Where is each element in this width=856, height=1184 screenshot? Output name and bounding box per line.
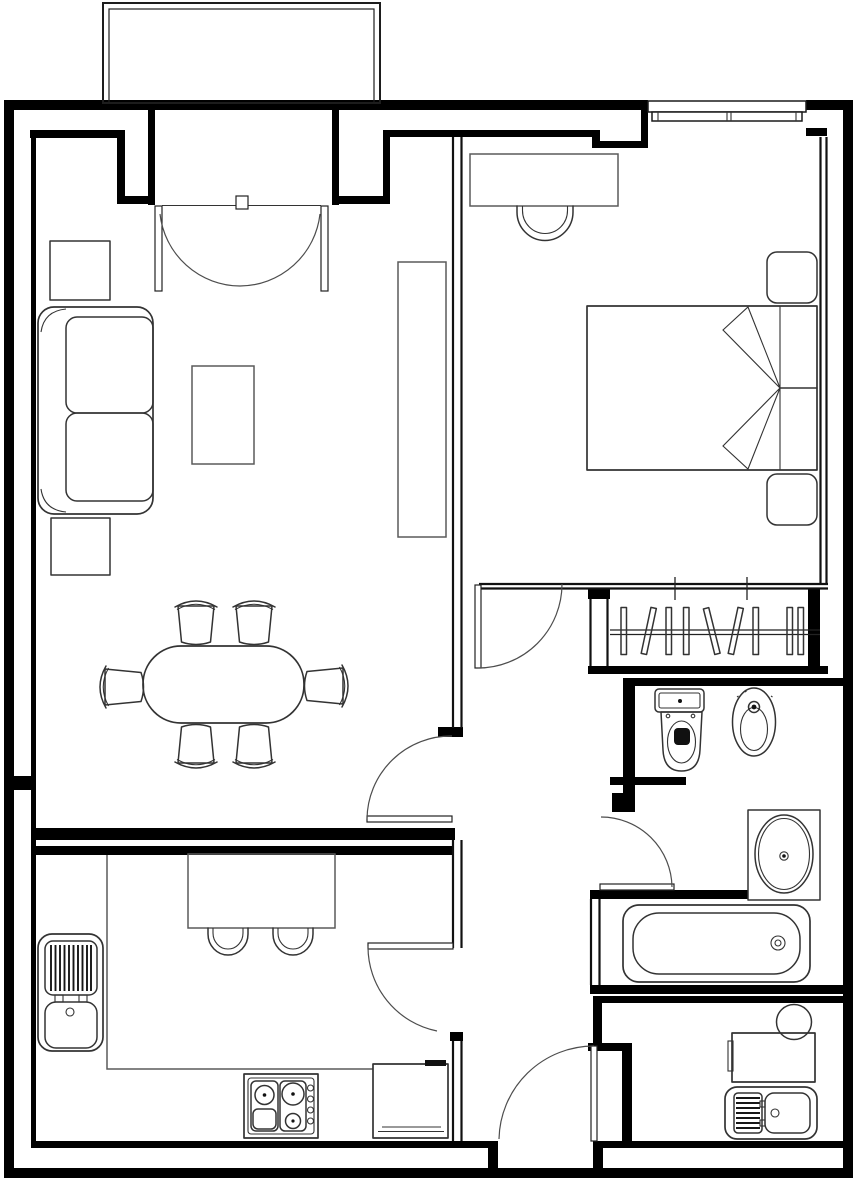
bathroom	[623, 688, 820, 982]
toilet-tank-button	[678, 699, 682, 703]
kitchen-sink	[38, 934, 103, 1051]
kitchen-sink-basin	[45, 1002, 97, 1048]
bedroom-door-leaf	[475, 585, 481, 668]
washbasin	[748, 810, 820, 900]
sofa	[38, 307, 153, 514]
utility-door-leaf	[591, 1046, 597, 1141]
cooktop-inner	[248, 1078, 314, 1134]
burner-small-left-dot	[263, 1093, 267, 1097]
living-room-door-leaf	[367, 816, 452, 822]
bathtub	[623, 905, 810, 982]
kitchen-sink-drainboard-ribs	[51, 945, 91, 991]
bathroom-door-leaf	[600, 884, 674, 890]
cooktop-square-plate	[253, 1109, 276, 1129]
washing-machine	[728, 1033, 815, 1082]
kitchen-sink-drain	[66, 1008, 74, 1016]
nightstand-upper	[767, 252, 817, 303]
french-door-right-swing-arc	[240, 214, 320, 286]
bidet-faucet-dot	[752, 705, 757, 710]
nightstand-lower	[767, 474, 817, 525]
sofa-armrest-lines	[41, 309, 66, 512]
balcony-inner-rail	[109, 9, 374, 103]
worktop-counter-edge	[107, 855, 373, 1069]
washbasin-bowl-outer	[755, 815, 813, 893]
bidet-body	[733, 688, 776, 756]
breakfast-area	[188, 854, 335, 955]
bedroom-window	[648, 101, 806, 121]
washing-machine-outline	[732, 1033, 815, 1082]
kitchen-door	[368, 943, 453, 1031]
blanket-fold-upper	[723, 307, 780, 388]
dining-chair-left	[100, 666, 144, 708]
toilet-hinge-left	[666, 714, 670, 718]
desk	[470, 154, 618, 206]
stool-right	[273, 928, 313, 955]
kitchen-door-leaf	[368, 943, 453, 949]
bedroom-door	[475, 584, 562, 668]
boiler-circle	[777, 1005, 812, 1040]
cooktop	[244, 1074, 318, 1138]
desk-chair-outer	[517, 206, 573, 241]
hanger-9	[798, 608, 804, 655]
sofa-cushion-top	[66, 317, 153, 413]
washbasin-bowl-inner	[759, 819, 810, 890]
dining-chair-top-left	[175, 601, 217, 645]
hanger-5	[703, 608, 720, 655]
desk-chair-inner	[523, 206, 568, 234]
hanger-4	[684, 608, 690, 655]
bathtub-drain-ring	[771, 936, 785, 950]
floor-plan-drawing: Black-and-white architectural floor plan…	[0, 0, 856, 1184]
utility-room-door	[499, 1046, 597, 1141]
refrigerator-base-lines	[378, 1127, 444, 1132]
french-door-right-leaf	[321, 206, 328, 291]
cooktop-left-panel	[251, 1081, 278, 1131]
toilet	[655, 689, 704, 771]
dining-chair-right	[305, 665, 349, 707]
bathtub-outer	[623, 905, 810, 982]
floor-plan-page: Black-and-white architectural floor plan…	[0, 0, 856, 1184]
burner-small-right-dot	[291, 1119, 294, 1122]
hanger-7	[753, 608, 759, 655]
living-room-door-swing-arc	[367, 736, 452, 819]
burner-large-dot	[291, 1092, 295, 1096]
desk-chair	[517, 206, 573, 241]
laundry-sink	[725, 1087, 817, 1139]
dining-table	[143, 646, 304, 723]
media-sideboard	[398, 262, 446, 537]
bedroom	[470, 154, 817, 525]
balcony-french-doors	[155, 196, 328, 291]
laundry-drainboard-ribs	[736, 1098, 760, 1128]
hanger-3	[666, 608, 672, 655]
dining-chair-top-right	[233, 601, 275, 645]
breakfast-table	[188, 854, 335, 928]
blanket-fold-lower	[723, 388, 780, 469]
coffee-table	[192, 366, 254, 464]
window-frame	[648, 101, 806, 112]
toilet-hinge-right	[691, 714, 695, 718]
dining-chair-bottom-left	[175, 725, 217, 769]
french-door-center-post	[236, 196, 248, 209]
kitchen-door-swing-arc	[368, 946, 437, 1031]
kitchen-sink-tab-left	[55, 995, 63, 1002]
washbasin-drain-dot	[782, 854, 786, 858]
hanger-6	[728, 607, 743, 654]
kitchen-sink-drainboard	[45, 941, 97, 995]
french-door-left-swing-arc	[160, 214, 240, 286]
cooktop-knobs	[308, 1085, 314, 1124]
balcony	[103, 3, 380, 103]
refrigerator	[373, 1060, 448, 1138]
bathtub-drain-dot	[775, 940, 781, 946]
hanger-1	[621, 608, 627, 655]
bathroom-door-swing-arc	[601, 817, 672, 887]
sofa-cushion-bottom	[66, 413, 153, 501]
dining-chair-bottom-right	[233, 725, 275, 769]
side-table-upper	[50, 241, 110, 300]
sofa-outline	[38, 307, 153, 514]
hanger-8	[787, 608, 793, 655]
kitchen-sink-tab-right	[79, 995, 87, 1002]
balcony-outer-rail	[103, 3, 380, 103]
laundry-basin-drain	[771, 1109, 779, 1117]
walk-in-closet	[610, 607, 820, 654]
stool-left	[208, 928, 248, 955]
bedroom-door-swing-arc	[478, 584, 562, 668]
living-dining-room	[38, 241, 446, 768]
utility-room	[725, 1005, 817, 1140]
double-bed	[587, 306, 817, 470]
bidet-basin	[741, 708, 768, 751]
bathroom-door	[600, 817, 674, 890]
bidet	[733, 688, 776, 756]
hanger-2	[641, 607, 656, 654]
kitchen	[38, 854, 448, 1138]
utility-door-swing-arc	[499, 1046, 594, 1139]
dining-set	[100, 601, 348, 768]
laundry-basin	[765, 1093, 810, 1133]
toilet-flush-shape	[674, 728, 690, 745]
refrigerator-handle	[425, 1060, 446, 1066]
living-room-door	[367, 736, 452, 822]
side-table-lower	[51, 518, 110, 575]
